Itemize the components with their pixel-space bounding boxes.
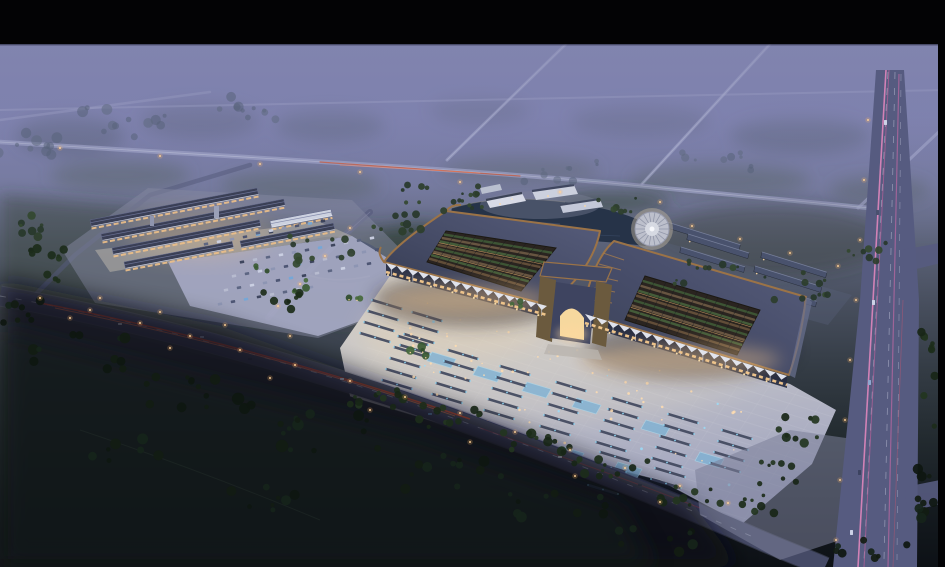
tree <box>467 203 471 207</box>
blue-light <box>717 440 719 442</box>
tree <box>406 346 415 355</box>
tree <box>623 209 627 213</box>
tree <box>153 450 163 460</box>
blue-light <box>607 408 609 410</box>
tree <box>28 317 34 323</box>
blue-light <box>665 483 667 485</box>
tree <box>88 452 97 461</box>
blue-light <box>399 344 401 346</box>
tree <box>738 150 743 155</box>
tree <box>776 426 782 432</box>
plaza-light <box>642 401 644 403</box>
tree <box>131 133 138 140</box>
blue-light <box>431 393 433 395</box>
plaza-light <box>733 449 734 450</box>
blue-light <box>525 385 527 387</box>
tree <box>304 278 309 283</box>
blue-light <box>682 418 684 420</box>
street-lamp <box>789 252 791 254</box>
tree <box>594 159 599 164</box>
plaza-light <box>641 397 643 399</box>
tree <box>751 508 758 515</box>
plaza-light <box>675 453 677 455</box>
blue-light <box>404 362 406 364</box>
plaza-light <box>483 374 485 376</box>
tree <box>673 497 681 505</box>
blue-light <box>389 341 391 343</box>
tree <box>137 447 144 454</box>
tree <box>770 509 779 518</box>
blue-light <box>381 379 383 381</box>
blue-light <box>611 397 613 399</box>
tree <box>929 344 933 348</box>
tree <box>15 317 20 322</box>
blue-light <box>637 417 639 419</box>
street-lamp <box>349 227 351 229</box>
tree <box>917 328 925 336</box>
blue-light <box>625 450 627 452</box>
tree <box>380 395 387 402</box>
blue-light <box>667 413 669 415</box>
tree <box>293 288 297 292</box>
street-lamp <box>39 297 41 299</box>
street-lamp <box>159 155 161 157</box>
tree <box>778 460 785 467</box>
lamp-dot <box>422 351 424 353</box>
tree <box>516 499 521 504</box>
blue-light <box>577 412 579 414</box>
window-light <box>473 297 475 299</box>
tree <box>403 220 411 228</box>
tree <box>390 404 396 410</box>
tree <box>247 504 252 509</box>
tree <box>811 294 817 300</box>
street-lamp <box>624 467 626 469</box>
plaza-light <box>524 409 526 411</box>
tree <box>526 430 532 436</box>
tree <box>727 153 735 161</box>
tree <box>281 431 286 436</box>
tree <box>517 298 523 304</box>
tree <box>915 496 922 503</box>
tree <box>232 393 244 405</box>
plaza-light <box>446 333 448 335</box>
tree <box>817 293 821 297</box>
tree <box>927 474 932 479</box>
tree <box>19 304 25 310</box>
tree <box>602 502 609 509</box>
tree <box>415 460 423 468</box>
tree <box>455 418 462 425</box>
tree <box>27 146 33 152</box>
tree <box>680 279 687 286</box>
tree <box>475 183 481 189</box>
tree <box>674 547 684 557</box>
blue-light <box>599 451 601 453</box>
blue-light <box>585 390 587 392</box>
tree <box>594 455 603 464</box>
blue-light <box>378 326 380 328</box>
blue-light <box>603 419 605 421</box>
blue-light <box>703 427 705 429</box>
blue-light <box>607 375 608 376</box>
blue-light <box>415 377 417 379</box>
street-lamp <box>139 322 141 324</box>
tree <box>476 466 485 475</box>
plaza-light <box>550 358 551 359</box>
window-light <box>608 332 610 334</box>
blue-light <box>732 445 734 447</box>
tree <box>410 472 414 476</box>
tree <box>287 234 292 239</box>
tree <box>608 474 613 479</box>
tree <box>479 456 490 467</box>
blue-light <box>422 327 424 329</box>
blue-light <box>447 349 449 351</box>
plaza-light <box>464 377 466 379</box>
street-lamp <box>69 317 71 319</box>
blue-light <box>614 456 616 458</box>
tree <box>376 391 381 396</box>
street-lamp <box>349 380 351 382</box>
window-light <box>743 373 745 375</box>
tree <box>19 224 22 227</box>
street-lamp <box>867 119 869 121</box>
tree <box>56 255 62 261</box>
blue-light <box>554 430 556 432</box>
tree <box>290 490 300 500</box>
lamp-dot <box>348 299 350 301</box>
plaza-light <box>518 409 521 412</box>
tree <box>29 357 38 366</box>
tree <box>261 109 268 116</box>
tree <box>204 405 208 409</box>
street-lamp <box>324 255 326 257</box>
plaza-light <box>412 376 415 379</box>
tree <box>21 128 31 138</box>
tree <box>392 213 399 220</box>
tree <box>603 463 607 467</box>
plaza-light <box>470 360 472 362</box>
tree <box>800 438 809 447</box>
plaza-light <box>624 381 627 384</box>
window-light <box>676 353 678 355</box>
street-lamp <box>559 191 561 193</box>
tree <box>634 197 637 200</box>
tree <box>361 428 367 434</box>
tree <box>144 381 150 387</box>
street-lamp <box>859 239 861 241</box>
blue-light <box>454 376 456 378</box>
tree <box>705 499 709 503</box>
window-light <box>653 346 655 348</box>
tree <box>119 365 126 372</box>
blue-light <box>477 358 479 360</box>
tree <box>569 177 577 185</box>
blue-light <box>655 446 657 448</box>
blue-light <box>629 460 631 462</box>
tree <box>687 262 691 266</box>
street-lamp <box>659 501 661 503</box>
tree <box>110 439 121 450</box>
tree <box>401 188 405 192</box>
tree <box>757 481 762 486</box>
window-light <box>516 308 518 310</box>
street-lamp <box>159 311 161 313</box>
tree <box>357 295 363 301</box>
blue-light <box>363 321 365 323</box>
tree <box>509 447 515 453</box>
tree <box>815 435 819 439</box>
tree <box>152 373 161 382</box>
blue-light <box>506 392 508 394</box>
tree <box>457 198 461 202</box>
blue-light <box>566 397 568 399</box>
tree <box>196 384 201 389</box>
blue-light <box>462 354 464 356</box>
plaza-light <box>690 390 692 392</box>
tree <box>41 146 51 156</box>
tree <box>294 296 298 300</box>
blue-light <box>495 376 497 378</box>
street-lamp <box>259 163 261 165</box>
tree <box>469 193 473 197</box>
plaza-light <box>537 356 539 358</box>
blue-light <box>543 414 545 416</box>
tree <box>440 453 446 459</box>
tree <box>60 245 68 253</box>
tree <box>270 503 274 507</box>
street-lamp <box>299 283 301 285</box>
tree <box>543 437 552 446</box>
plaza-light <box>740 411 742 413</box>
tree <box>43 271 51 279</box>
plaza-light <box>627 392 630 395</box>
street-lamp <box>239 349 241 351</box>
tree <box>782 433 791 442</box>
street-lamp <box>574 475 576 477</box>
tree <box>287 305 295 313</box>
street-lamp <box>863 179 865 181</box>
window-light <box>689 241 691 243</box>
tree <box>295 417 301 423</box>
tree <box>37 226 44 233</box>
blue-light <box>403 333 405 335</box>
tree <box>260 289 267 296</box>
street-lamp <box>569 449 571 451</box>
blue-light <box>551 392 553 394</box>
street-lamp <box>691 225 693 227</box>
blue-light <box>517 407 519 409</box>
tree <box>189 377 195 383</box>
tree <box>417 225 425 233</box>
tree <box>757 502 765 510</box>
tree <box>788 463 795 470</box>
blue-light <box>446 398 448 400</box>
plaza-light <box>636 390 638 392</box>
blue-light <box>721 429 723 431</box>
blue-light <box>514 370 516 372</box>
blue-light <box>697 422 699 424</box>
tree <box>667 536 673 542</box>
blue-light <box>469 380 471 382</box>
tree <box>412 210 420 218</box>
tree <box>454 483 460 489</box>
tree <box>0 319 7 326</box>
plaza-light <box>436 393 439 396</box>
tree <box>916 513 926 523</box>
tree <box>709 488 713 492</box>
window-light <box>537 314 539 316</box>
tree <box>440 207 447 214</box>
tree <box>309 256 315 262</box>
tree <box>762 494 766 498</box>
tree <box>353 410 364 421</box>
tree <box>420 417 423 420</box>
street-lamp <box>289 335 291 337</box>
plaza-light <box>610 418 613 421</box>
street-lamp <box>294 364 296 366</box>
tree <box>763 276 766 279</box>
blue-light <box>393 346 395 348</box>
blue-light <box>458 365 460 367</box>
window-light <box>451 291 453 293</box>
blue-light <box>359 332 361 334</box>
lamp-dot <box>511 305 513 307</box>
tree <box>771 296 778 303</box>
blue-light <box>513 418 515 420</box>
tree <box>210 374 221 385</box>
street-lamp <box>659 201 661 203</box>
tree <box>811 415 819 423</box>
tree <box>163 114 167 118</box>
tree <box>691 488 698 495</box>
tree <box>739 155 742 158</box>
tree <box>599 509 608 518</box>
blue-light <box>569 434 571 436</box>
tree <box>146 400 154 408</box>
tree <box>871 554 879 562</box>
tree <box>801 270 806 275</box>
street-lamp <box>679 485 681 487</box>
tree <box>932 424 937 429</box>
tree <box>739 501 746 508</box>
tree <box>126 117 132 123</box>
tree <box>508 492 513 497</box>
street-lamp <box>359 171 361 173</box>
tree <box>541 168 544 171</box>
blue-light <box>374 337 376 339</box>
tree <box>305 409 315 419</box>
window-light <box>430 285 432 287</box>
window-light <box>631 339 633 341</box>
blue-light <box>499 365 501 367</box>
tree <box>679 149 685 155</box>
tree <box>137 433 148 444</box>
tree <box>601 469 604 472</box>
plaza-light <box>733 411 736 414</box>
tree <box>461 192 464 195</box>
street-lamp <box>839 479 841 481</box>
tree <box>253 263 258 268</box>
tree <box>749 164 754 169</box>
blue-light <box>622 413 624 415</box>
rendering-stage <box>0 0 945 567</box>
lamp-dot <box>425 357 427 359</box>
tree <box>553 176 561 184</box>
street-lamp <box>739 238 741 240</box>
street-lamp <box>89 309 91 311</box>
tree <box>516 512 527 523</box>
tree <box>247 401 256 410</box>
tree <box>15 143 19 147</box>
tree <box>673 282 677 286</box>
tree <box>276 496 280 500</box>
street-lamp <box>459 412 461 414</box>
tree <box>288 447 293 452</box>
tree <box>511 441 517 447</box>
tree <box>736 266 739 269</box>
tree <box>823 279 826 282</box>
blue-light <box>614 435 616 437</box>
tree <box>117 357 126 366</box>
blue-light <box>472 355 474 357</box>
lamp-dot <box>410 352 412 354</box>
tree <box>873 258 880 265</box>
tree <box>347 249 355 257</box>
tree <box>11 300 19 308</box>
tree <box>427 425 431 429</box>
tree <box>204 393 210 399</box>
tree <box>409 228 414 233</box>
tree <box>801 279 808 286</box>
tree <box>355 398 363 406</box>
tree <box>929 498 938 507</box>
blue-light <box>510 381 512 383</box>
street-lamp <box>855 299 857 301</box>
blue-light <box>693 433 695 435</box>
tree <box>629 464 636 471</box>
tree <box>915 504 924 513</box>
tree <box>102 104 113 115</box>
street-lamp <box>844 419 846 421</box>
tree <box>404 200 408 204</box>
tree <box>561 450 567 456</box>
street-lamp <box>469 441 471 443</box>
tree <box>311 448 316 453</box>
blue-light <box>529 374 531 376</box>
blue-light <box>654 467 656 469</box>
tree <box>799 295 805 301</box>
tree <box>112 122 119 129</box>
tree <box>101 129 107 135</box>
tree <box>353 395 357 399</box>
tree <box>398 227 406 235</box>
tree <box>767 464 770 467</box>
tree <box>379 227 383 231</box>
tree <box>618 541 624 547</box>
plaza-light <box>563 442 566 445</box>
street-lamp <box>59 147 61 149</box>
tree <box>265 269 270 274</box>
tree <box>743 497 747 501</box>
tree <box>903 541 910 548</box>
plaza-light <box>433 372 435 374</box>
blue-light <box>393 330 395 332</box>
tree <box>177 402 187 412</box>
tree <box>270 507 275 512</box>
blue-light <box>629 439 631 441</box>
